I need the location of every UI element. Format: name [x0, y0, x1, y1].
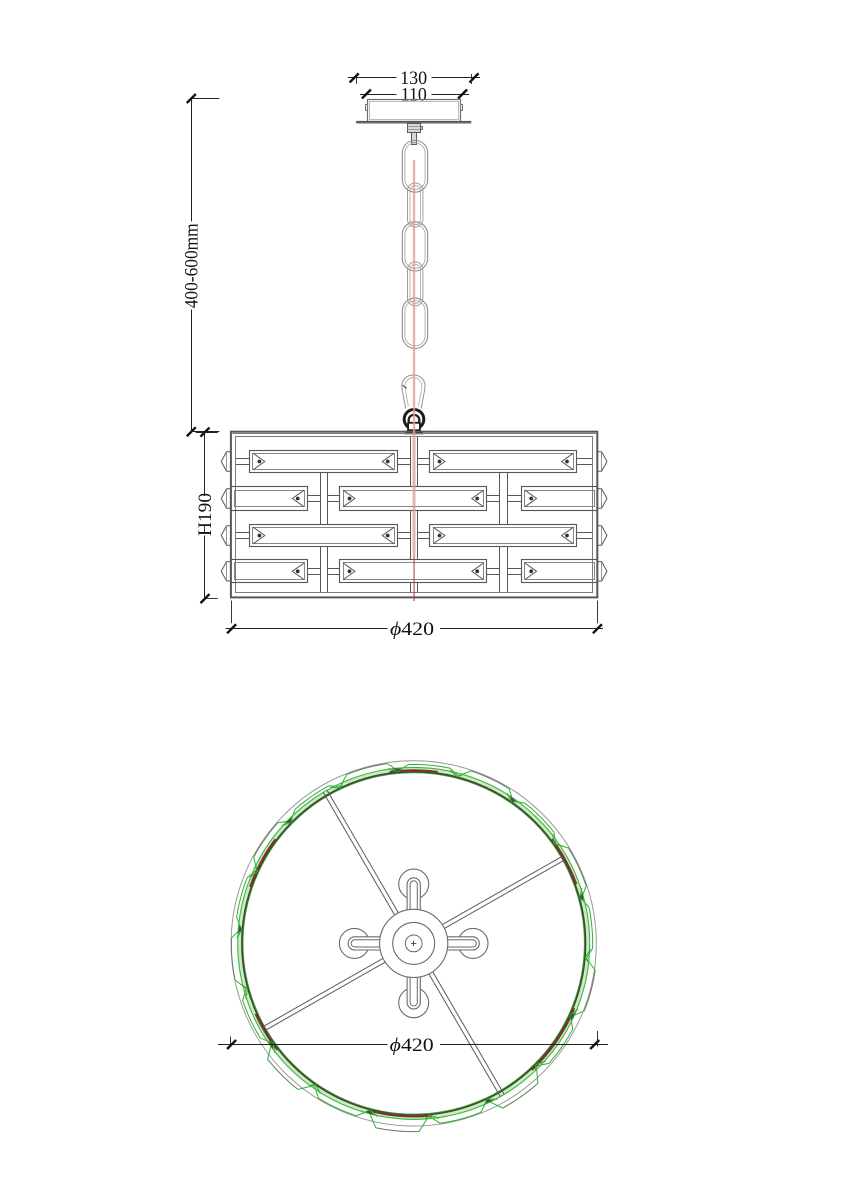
- svg-text:400-600mm: 400-600mm: [181, 223, 202, 308]
- svg-text:110: 110: [401, 84, 427, 105]
- svg-text:ϕ420: ϕ420: [390, 1035, 434, 1056]
- svg-text:H190: H190: [195, 493, 216, 536]
- svg-text:ϕ420: ϕ420: [390, 619, 434, 640]
